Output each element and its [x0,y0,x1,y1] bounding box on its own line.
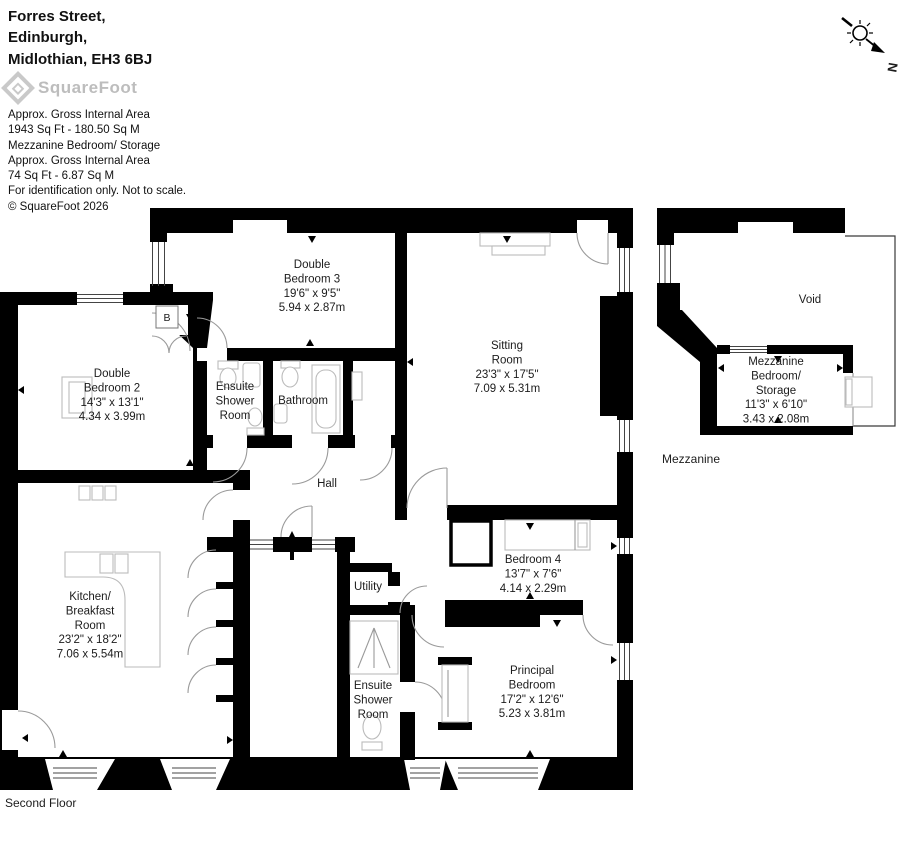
label-mezzanine-floor: Mezzanine [662,452,720,466]
label-principal-bedroom: PrincipalBedroom17'2" x 12'6"5.23 x 3.81… [499,665,565,720]
label-sitting-room: SittingRoom23'3" x 17'5"7.09 x 5.31m [474,340,540,395]
label-mezzanine-bedroom-storage: MezzanineBedroom/Storage11'3" x 6'10"3.4… [743,356,809,426]
label-ensuite-shower-room-1: EnsuiteShowerRoom [216,381,255,422]
label-utility: Utility [354,581,382,593]
label-ensuite-shower-room-2: EnsuiteShowerRoom [354,680,393,721]
compass-north-icon: N [842,18,900,73]
compass-north-label: N [884,61,900,73]
label-double-bedroom-3: DoubleBedroom 319'6" x 9'5"5.94 x 2.87m [279,259,345,314]
label-hall: Hall [317,478,337,490]
label-bathroom: Bathroom [278,395,328,407]
dimension-ticks [18,236,843,757]
label-boiler: B [163,312,170,324]
label-bedroom-4: Bedroom 413'7" x 7'6"4.14 x 2.29m [500,554,566,595]
label-second-floor: Second Floor [5,796,76,810]
floorplan-drawing: DoubleBedroom 319'6" x 9'5"5.94 x 2.87m … [0,0,900,844]
floorplan-page: Forres Street,Edinburgh,Midlothian, EH3 … [0,0,900,844]
label-void: Void [799,294,821,306]
label-kitchen-breakfast-room: Kitchen/BreakfastRoom23'2" x 18'2"7.06 x… [57,591,123,661]
